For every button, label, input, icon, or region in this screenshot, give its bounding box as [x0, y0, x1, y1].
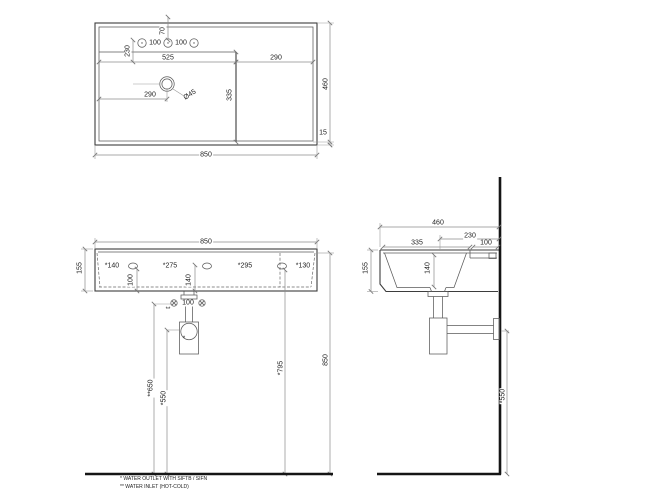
front-view — [81, 238, 334, 474]
basin-outline-top — [95, 23, 317, 145]
dim-basin-inner-width: 525 — [161, 55, 175, 62]
dim-hole1-from-left: *140 — [104, 263, 120, 270]
dim-drain-from-wall: 230 — [463, 233, 477, 240]
faucet-holes-front — [129, 263, 287, 269]
dim-outlet-height-side: *550 — [500, 388, 507, 404]
dim-overall-width-top: 850 — [199, 152, 213, 159]
drain-hole-top — [160, 77, 184, 96]
top-view — [95, 17, 334, 159]
dim-hole1-to-hole2: *275 — [162, 263, 178, 270]
wall-flange — [494, 319, 500, 340]
outlet-reference-mark: * — [182, 336, 186, 342]
dim-hole-spacing-left: 100 — [148, 40, 162, 47]
dim-inlet-height: **650 — [148, 378, 155, 397]
dim-height-front: 155 — [77, 261, 84, 275]
dim-height-side: 155 — [363, 261, 370, 275]
dim-hole2-to-hole3: *295 — [237, 263, 253, 270]
dim-overall-depth-top: 460 — [323, 77, 330, 91]
dim-hole-spacing-right: 100 — [174, 40, 188, 47]
dim-outlet-height-front: *550 — [161, 390, 168, 406]
dim-basin-depth-side: 335 — [410, 240, 424, 247]
dim-overall-width-front: 850 — [199, 239, 213, 246]
bottle-trap-side — [428, 292, 494, 355]
dim-rim-height-floor: 850 — [323, 353, 330, 367]
dim-bowl-depth-side: 140 — [425, 261, 432, 275]
dim-drain-from-left: 290 — [143, 92, 157, 99]
inlet-reference-mark: ** — [165, 307, 172, 313]
dim-basin-inner-depth: 335 — [227, 88, 234, 102]
dim-hole3-to-right: *130 — [295, 263, 311, 270]
note-water-outlet: * WATER OUTLET WITH SIFTB / SIFN — [120, 476, 207, 483]
technical-drawing-page: 70 100 100 230 525 290 290 335 Ø45 460 1… — [0, 0, 667, 500]
dim-overall-depth-side: 460 — [431, 220, 445, 227]
dim-rim-thickness: 15 — [318, 130, 328, 137]
dim-drain-from-top: 230 — [125, 44, 132, 58]
dim-shelf-width: 290 — [269, 55, 283, 62]
dim-deck-width-side: 100 — [479, 240, 493, 247]
dim-hole-offset-top: 70 — [160, 26, 167, 36]
dim-drain-depth-front: 140 — [186, 273, 193, 287]
technical-drawing-canvas — [0, 0, 667, 500]
basin-outline-side — [380, 250, 498, 292]
dim-inlet-spacing: 100 — [181, 300, 195, 307]
dim-hole-height-floor: *795 — [278, 360, 285, 376]
note-water-inlet: ** WATER INLET (HOT-COLD) — [120, 484, 189, 491]
faucet-holes-top — [138, 39, 198, 47]
dim-hole-height-front: 100 — [128, 273, 135, 287]
